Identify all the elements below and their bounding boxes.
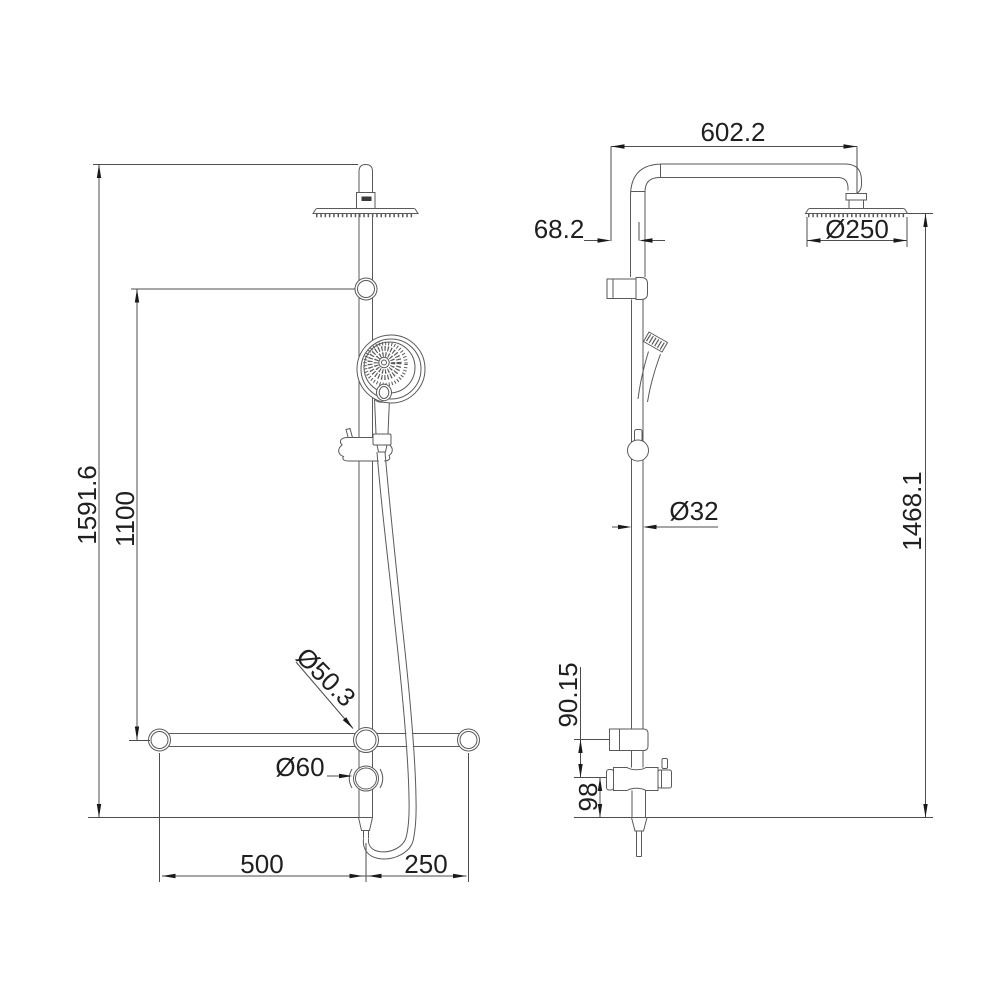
- dim-head-diameter-label: Ø250: [825, 214, 889, 244]
- front-view: 1591.6 1100 500 250 Ø50.3 Ø60: [72, 165, 480, 883]
- dim-column-diameter-label: Ø32: [669, 496, 718, 526]
- dim-overall-height-label: 1591.6: [72, 465, 102, 545]
- column-joint-band: [362, 197, 372, 202]
- front-slide-bar: [149, 728, 480, 753]
- dim-wall-offset-label: 68.2: [534, 214, 585, 244]
- side-lower-wall-bracket: [610, 729, 649, 751]
- side-dimensions: 602.2 68.2 Ø250 Ø32 1468.1 90.15 98: [534, 117, 933, 818]
- side-hand-shower: [638, 332, 668, 402]
- side-holder-knob: [628, 430, 649, 462]
- side-diverter-valve: [607, 759, 672, 791]
- dim-column-height-label: 1468.1: [897, 471, 927, 551]
- side-rail: [632, 300, 644, 730]
- front-hose-outlet: [359, 818, 373, 839]
- front-hand-shower: [357, 335, 425, 452]
- side-head-connector: [846, 194, 867, 209]
- front-diverter-knob: [349, 766, 383, 791]
- front-overhead-shower: [313, 209, 418, 216]
- dim-knob-diameter-label: Ø60: [275, 752, 324, 782]
- hand-shower-center-button: [379, 357, 389, 367]
- side-rail-lower: [632, 751, 644, 768]
- hand-shower-grip: [375, 399, 390, 435]
- side-view: 602.2 68.2 Ø250 Ø32 1468.1 90.15 98: [534, 117, 933, 857]
- dim-bracket-to-diverter-label: 90.15: [553, 662, 583, 727]
- dim-rail-height-label: 1100: [110, 491, 140, 547]
- front-wall-ring: [355, 278, 377, 300]
- diverter-pin: [662, 759, 668, 769]
- hand-shower-hose-nut: [373, 434, 391, 445]
- side-upper-wall-bracket: [607, 278, 648, 300]
- front-column: [357, 165, 376, 818]
- diverter-handle: [658, 770, 672, 788]
- dim-bar-right-label: 250: [404, 849, 447, 879]
- dim-rail-joint-diameter-label: Ø50.3: [290, 641, 361, 712]
- dim-diverter-to-outlet-label: 98: [573, 783, 603, 812]
- drawing-page: 1591.6 1100 500 250 Ø50.3 Ø60: [0, 0, 1000, 1000]
- side-hose-outlet: [632, 791, 648, 857]
- dim-arm-reach-label: 602.2: [700, 117, 765, 147]
- front-hose: [363, 452, 416, 859]
- technical-drawing-canvas: 1591.6 1100 500 250 Ø50.3 Ø60: [0, 0, 1000, 1000]
- dim-bar-left-label: 500: [240, 849, 283, 879]
